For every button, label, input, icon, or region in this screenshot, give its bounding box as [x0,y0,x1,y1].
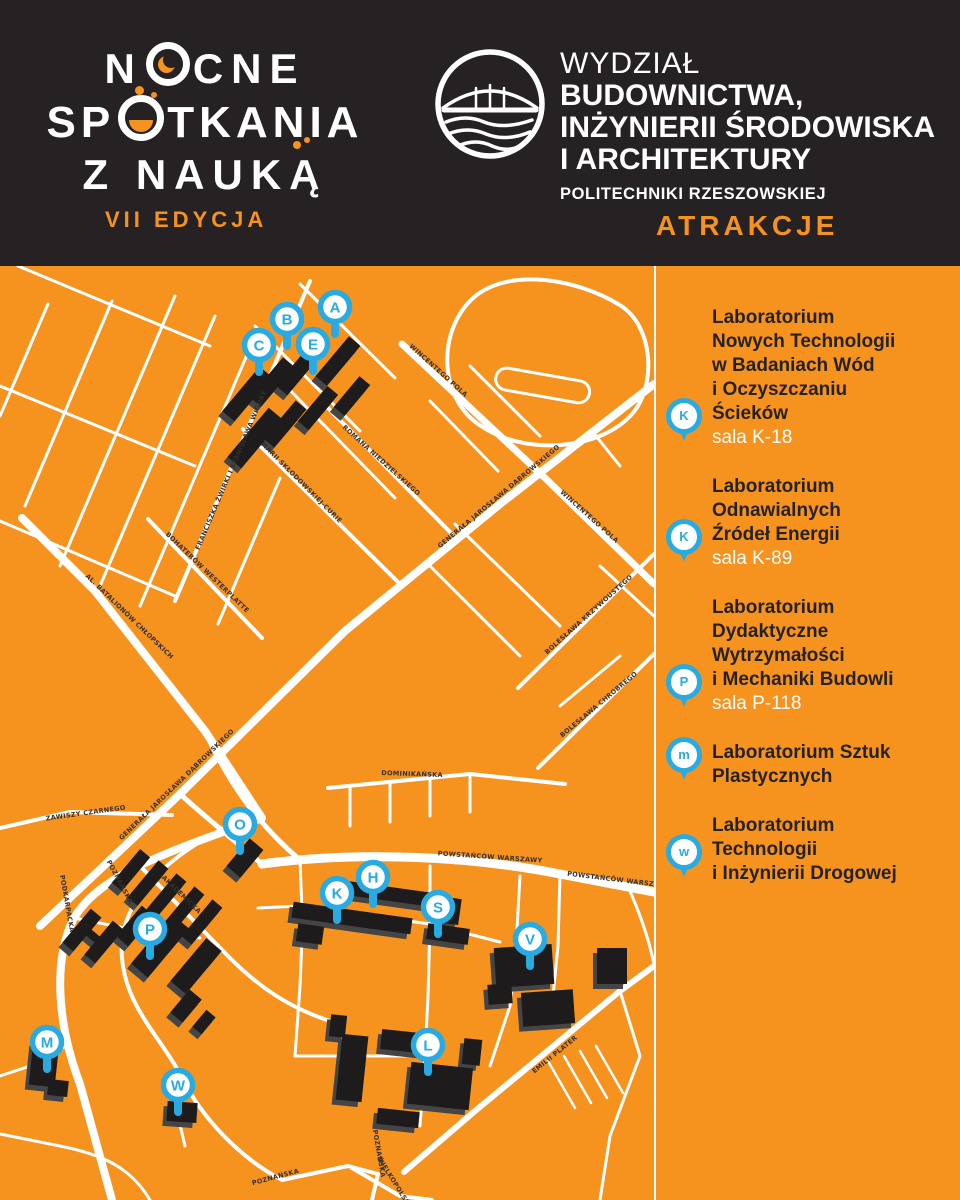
campus-map: WINCENTEGO POLAWINCENTEGO POLAROMANA NIE… [0,266,654,1200]
event-logo-line1: NCNE [25,42,385,95]
street-label: AL. BATALIONÓW CHŁOPSKICH [84,572,176,661]
event-logo-line2: SPTKANIA [25,95,385,149]
street-label: ZAWISZY CZARNEGO [45,803,126,822]
svg-text:K: K [332,886,343,903]
svg-text:O: O [234,817,246,834]
flask-o-icon [118,95,164,141]
faculty-line1: WYDZIAŁ [560,48,935,80]
street-label: DOMINIKAŃSKA [381,768,443,779]
street-label: MARII SKŁODOWSKIEJ-CURIE [259,440,344,525]
attractions-title: ATRAKCJE [656,210,838,242]
moon-o-icon [146,42,190,86]
svg-text:M: M [41,1035,54,1052]
map-pin-C[interactable]: C [245,331,274,373]
list-item: m Laboratorium Sztuk Plastycznych [656,741,960,789]
bubbles-icon [293,139,313,151]
pin-K-icon: K [666,398,702,434]
faculty-line3: INŻYNIERII ŚRODOWISKA [560,112,935,144]
pin-column: P [656,596,712,716]
lab-name: Laboratorium Sztuk Plastycznych [712,741,960,789]
faculty-line2: BUDOWNICTWA, [560,80,935,112]
svg-text:W: W [171,1078,186,1095]
medium-streets [0,279,654,1200]
list-item: K Laboratorium Odnawialnych Źródeł Energ… [656,475,960,571]
lab-room: sala K-18 [712,426,960,450]
pin-K-icon: K [666,519,702,555]
pin-P-icon: P [666,664,702,700]
list-item: K Laboratorium Nowych Technologii w Bada… [656,306,960,450]
lab-room: sala K-89 [712,547,960,571]
attractions-sidebar: K Laboratorium Nowych Technologii w Bada… [656,266,960,1200]
svg-text:V: V [525,932,535,949]
street-label: BOLESŁAWA CHROBREGO [558,670,639,740]
lab-name: Laboratorium Dydaktyczne Wytrzymałości i… [712,596,960,692]
event-logo-line3: Z NAUKĄ [25,149,385,201]
svg-text:A: A [330,300,341,317]
street-label: WINCENTEGO POLA [559,488,621,545]
lab-name: Laboratorium Technologii i Inżynierii Dr… [712,814,960,886]
faculty-name: WYDZIAŁ BUDOWNICTWA, INŻYNIERII ŚRODOWIS… [560,48,935,210]
buildings [25,336,627,1133]
header: NCNE SPTKANIA Z NAUKĄ VII EDYCJA WYDZIAŁ [0,0,960,266]
street-label: BOHATERÓW WESTERPLATTE [164,530,252,615]
pin-column: K [656,475,712,571]
list-item: w Laboratorium Technologii i Inżynierii … [656,814,960,886]
faculty-line4: I ARCHITEKTURY [560,144,935,176]
pin-m-icon: m [666,737,702,773]
poster: NCNE SPTKANIA Z NAUKĄ VII EDYCJA WYDZIAŁ [0,0,960,1200]
street-label: WINCENTEGO POLA [408,342,470,399]
svg-text:S: S [433,900,443,917]
pin-column: m [656,741,712,789]
faculty-bridge-logo-icon [432,46,548,162]
pin-w-icon: w [666,834,702,870]
edition-label: VII EDYCJA [25,207,385,233]
street-label: ROMANA NIEDZIELSKIEGO [341,423,422,497]
pin-column: K [656,306,712,450]
svg-text:L: L [423,1038,432,1055]
lab-name: Laboratorium Odnawialnych Źródeł Energii [712,475,960,547]
faculty-line5: POLITECHNIKI RZESZOWSKIEJ [560,178,935,210]
svg-text:E: E [308,337,318,354]
lab-room: sala P-118 [712,692,960,716]
svg-text:H: H [368,870,379,887]
street-label: POZNAŃSKA [251,1166,300,1187]
street-label: BOLESŁAWA KRZYWOUSTEGO [543,573,634,656]
lab-name: Laboratorium Nowych Technologii w Badani… [712,306,960,426]
svg-text:P: P [145,922,155,939]
svg-text:B: B [282,312,293,329]
street-label: GENERAŁA JAROSŁAWA DĄBROWSKIEGO [436,443,561,550]
list-item: P Laboratorium Dydaktyczne Wytrzymałości… [656,596,960,716]
event-logo: NCNE SPTKANIA Z NAUKĄ VII EDYCJA [25,42,385,233]
pin-column: w [656,814,712,886]
svg-text:C: C [254,338,265,355]
